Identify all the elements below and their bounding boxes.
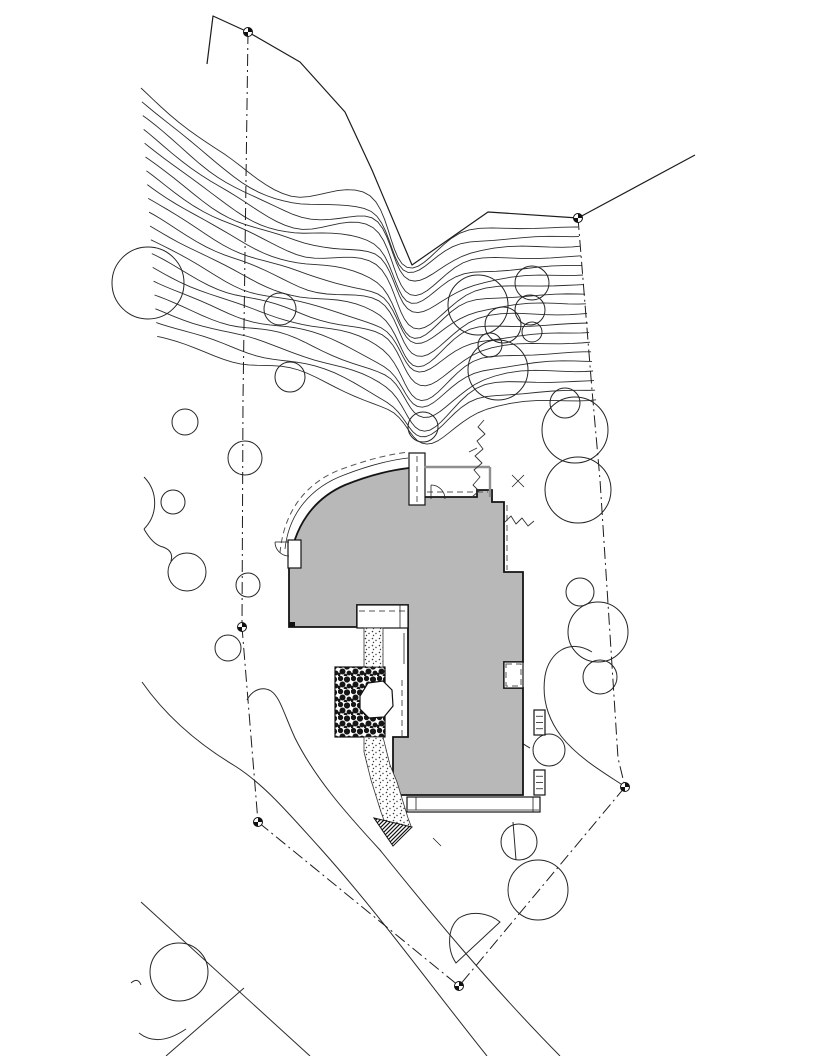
west-door-notch [288,540,301,568]
contour-line [147,185,585,339]
contour-line [156,323,595,437]
shrub-arc [139,1029,186,1040]
east-recess [504,662,523,688]
contour-line [141,88,578,268]
contour-line [146,157,583,313]
survey-marker-wedge [574,218,579,223]
survey-marker-wedge [625,783,630,788]
tree-canopy [168,553,206,591]
x-spot-mark [512,475,524,487]
site-plan-drawing [0,0,816,1056]
survey-marker-wedge [578,214,583,219]
corner-mark [289,622,295,627]
tree-canopy [485,307,521,343]
site-plan-sheet [0,0,816,1056]
gravel-path-upper [364,628,383,667]
site-edge-line [207,16,695,265]
contour-line [142,102,579,273]
tree-canopy [228,441,262,475]
survey-marker-wedge [248,28,253,33]
road-edge-1 [141,902,310,1056]
survey-marker-wedge [244,32,249,37]
tree-canopy [566,578,594,606]
contour-line [154,281,592,407]
tree-canopy [236,573,260,597]
tree-canopy [542,397,608,463]
tree-canopy [215,635,241,661]
tree-canopy [275,362,305,392]
tree-canopy [172,409,198,435]
twig [131,980,141,985]
arc-tail [144,529,172,561]
shrub-outline [450,913,500,963]
tree-canopy [533,734,565,766]
tree-canopy [161,490,185,514]
building-footprint [275,452,545,846]
hedge-spur [469,448,477,452]
road-edge-2 [166,988,244,1056]
house-footprint [289,468,523,795]
stem [513,822,516,860]
tree-canopy [112,247,184,319]
contour-line [149,212,587,356]
contour-line [144,129,581,295]
tree-canopy [150,943,208,1001]
tree-canopy [568,602,628,662]
survey-marker-wedge [455,986,460,991]
survey-marker-wedge [242,623,247,628]
door-swing-arc [275,542,289,556]
contour-line [151,240,589,372]
tree-canopy [501,824,537,860]
tree-canopy [508,860,568,920]
road-edges [141,902,310,1056]
contour-line [143,116,580,282]
contour-line [152,254,590,386]
contour-line [153,267,591,400]
contour-line [157,336,596,444]
scrub-line [505,516,534,526]
survey-marker-wedge [258,818,263,823]
tree-canopy [583,660,617,694]
tree-canopy [550,388,580,418]
survey-marker-wedge [238,627,243,632]
site-edge-polyline [207,16,695,265]
survey-marker-wedge [254,822,259,827]
tree-canopy [408,412,438,442]
hedge-vine [472,420,485,497]
tree-canopy [468,340,528,400]
tree-arc [144,477,155,529]
tick-mark [433,838,441,846]
